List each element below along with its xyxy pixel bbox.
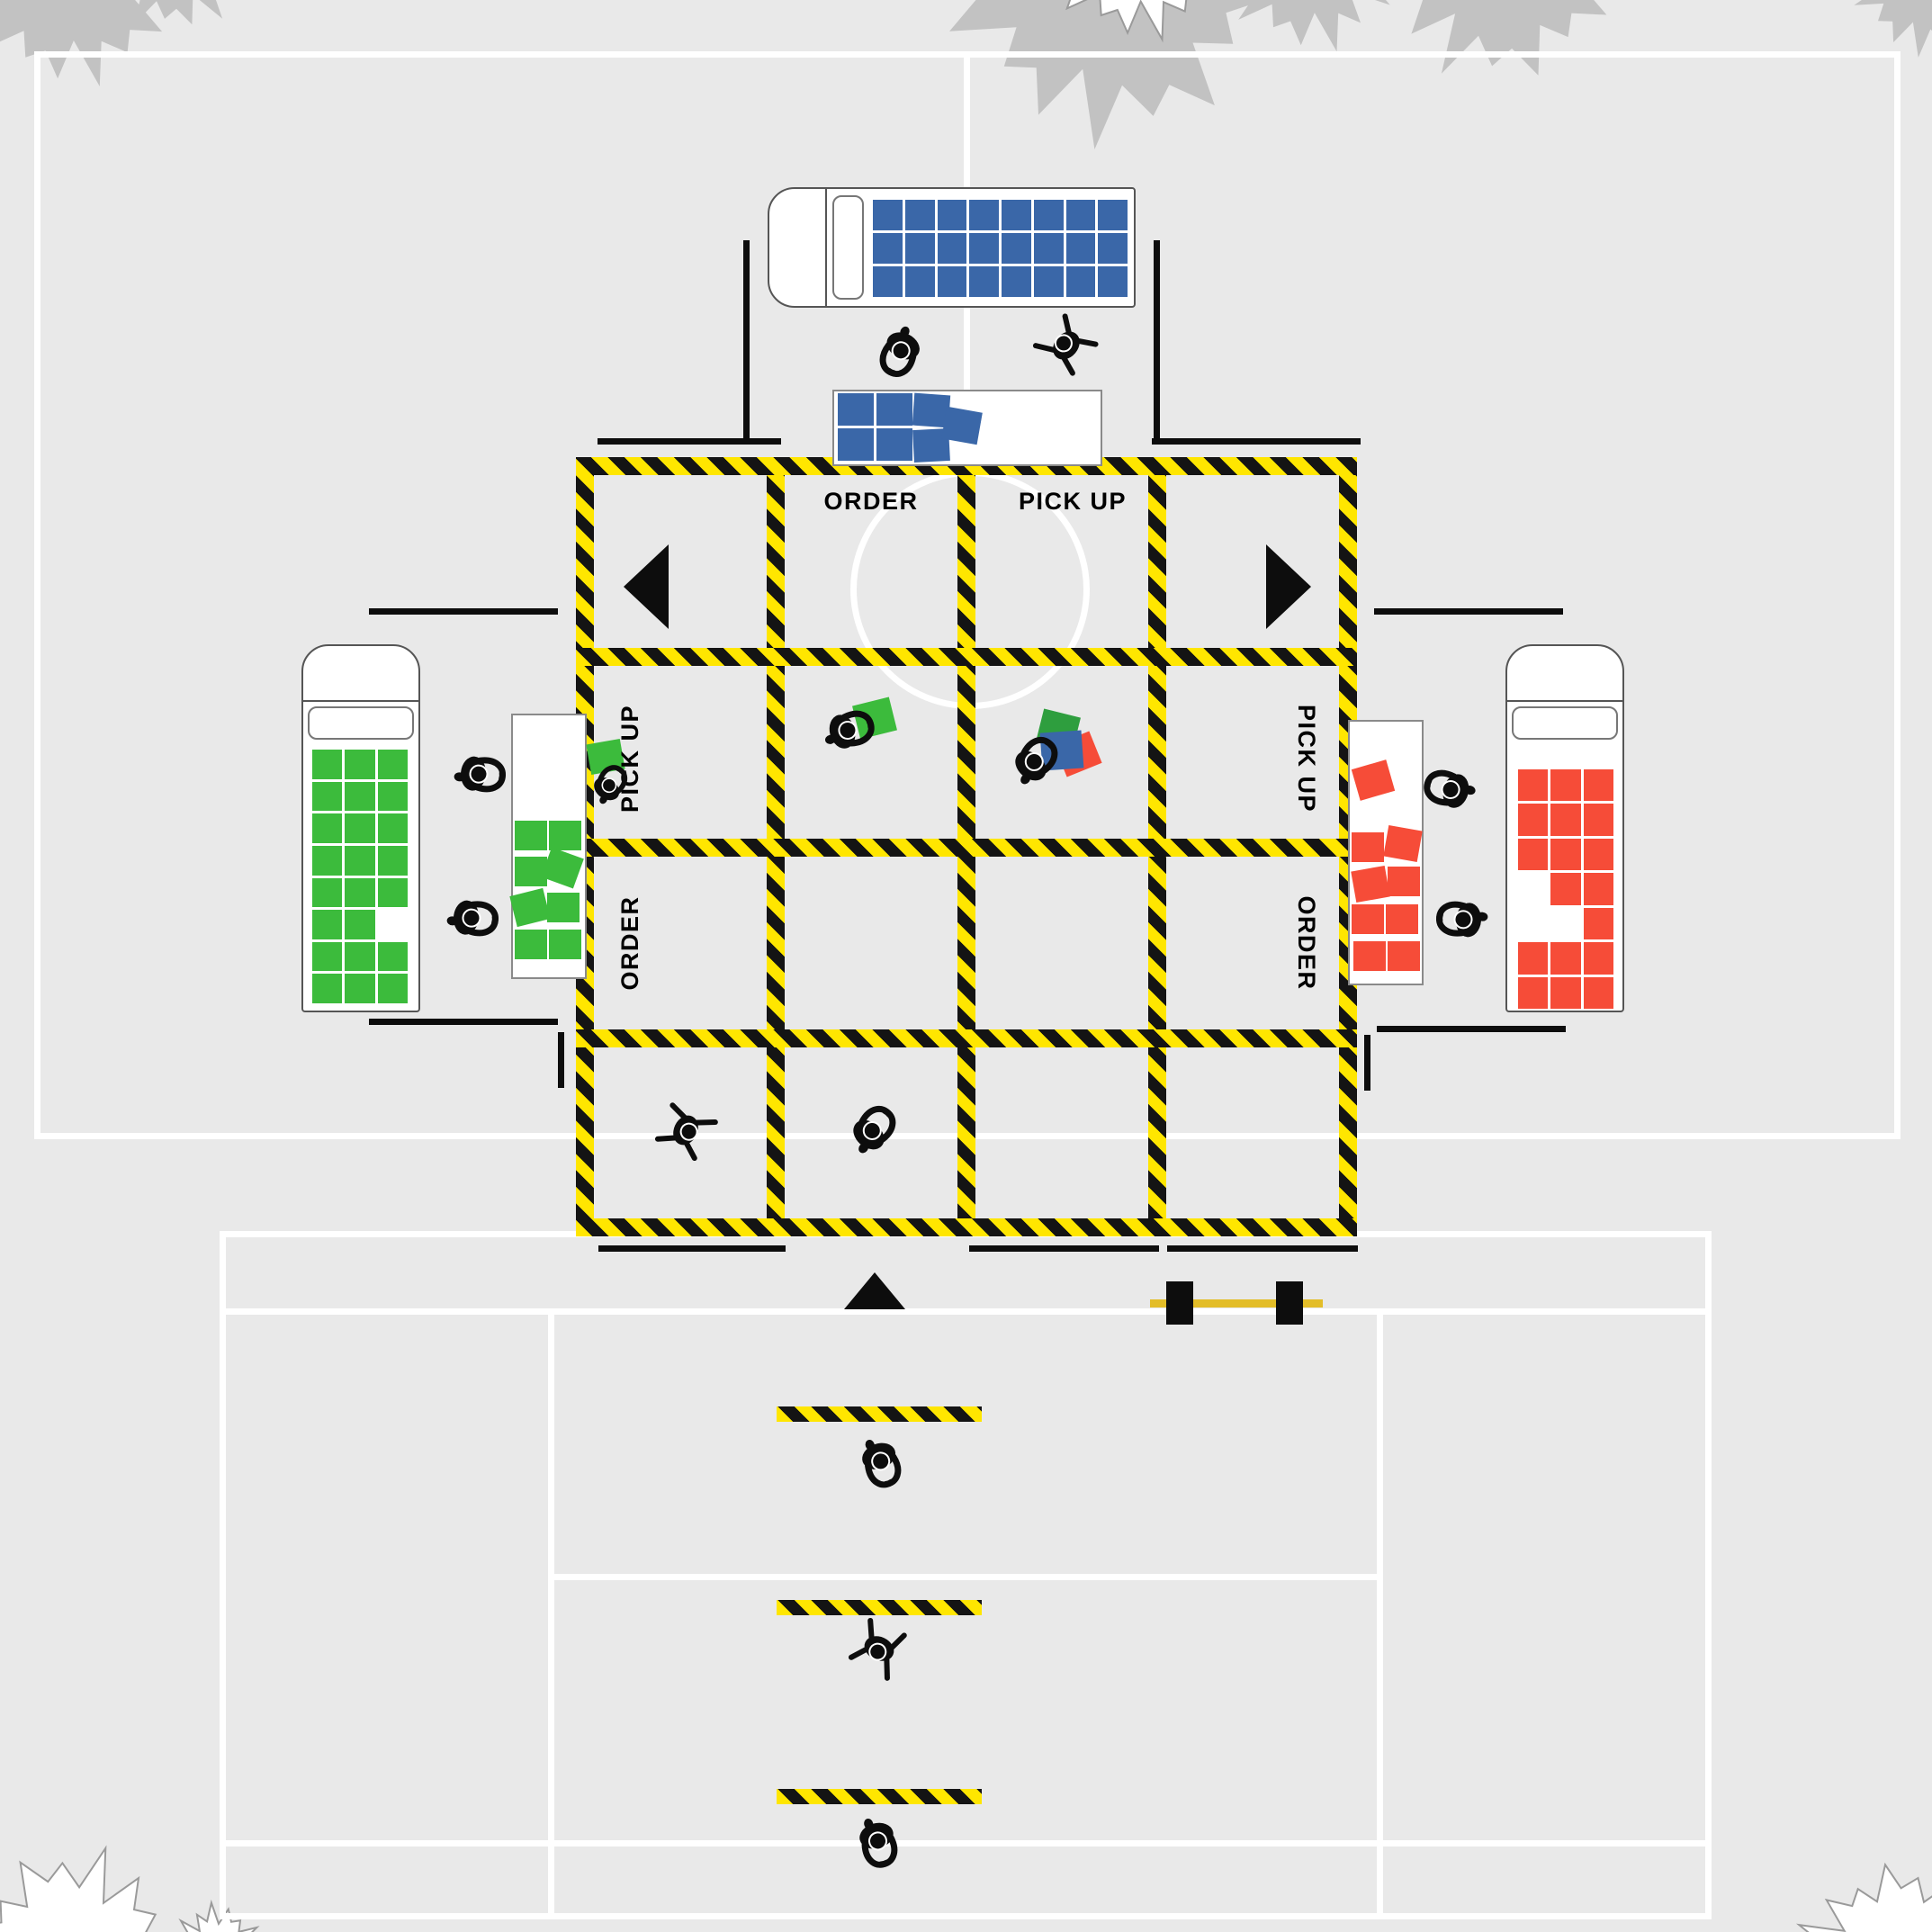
person-carry-icon xyxy=(820,707,876,753)
person-carry-icon xyxy=(843,1101,900,1160)
person-walk-icon xyxy=(849,1619,906,1678)
person-carry-icon xyxy=(876,321,927,380)
person-carry-icon xyxy=(587,762,631,809)
people-layer xyxy=(0,0,1932,1932)
person-carry-icon xyxy=(1438,901,1489,939)
person-carry-icon xyxy=(453,755,504,794)
site-plan: ORDER PICK UP PICK UP ORDER PICK UP ORDE… xyxy=(0,0,1932,1932)
person-carry-icon xyxy=(1005,732,1062,791)
person-carry-icon xyxy=(855,1813,901,1869)
person-carry-icon xyxy=(857,1433,905,1489)
person-carry-icon xyxy=(1424,767,1479,813)
person-walk-icon xyxy=(656,1102,715,1159)
person-carry-icon xyxy=(445,899,497,938)
person-walk-icon xyxy=(1036,314,1098,375)
